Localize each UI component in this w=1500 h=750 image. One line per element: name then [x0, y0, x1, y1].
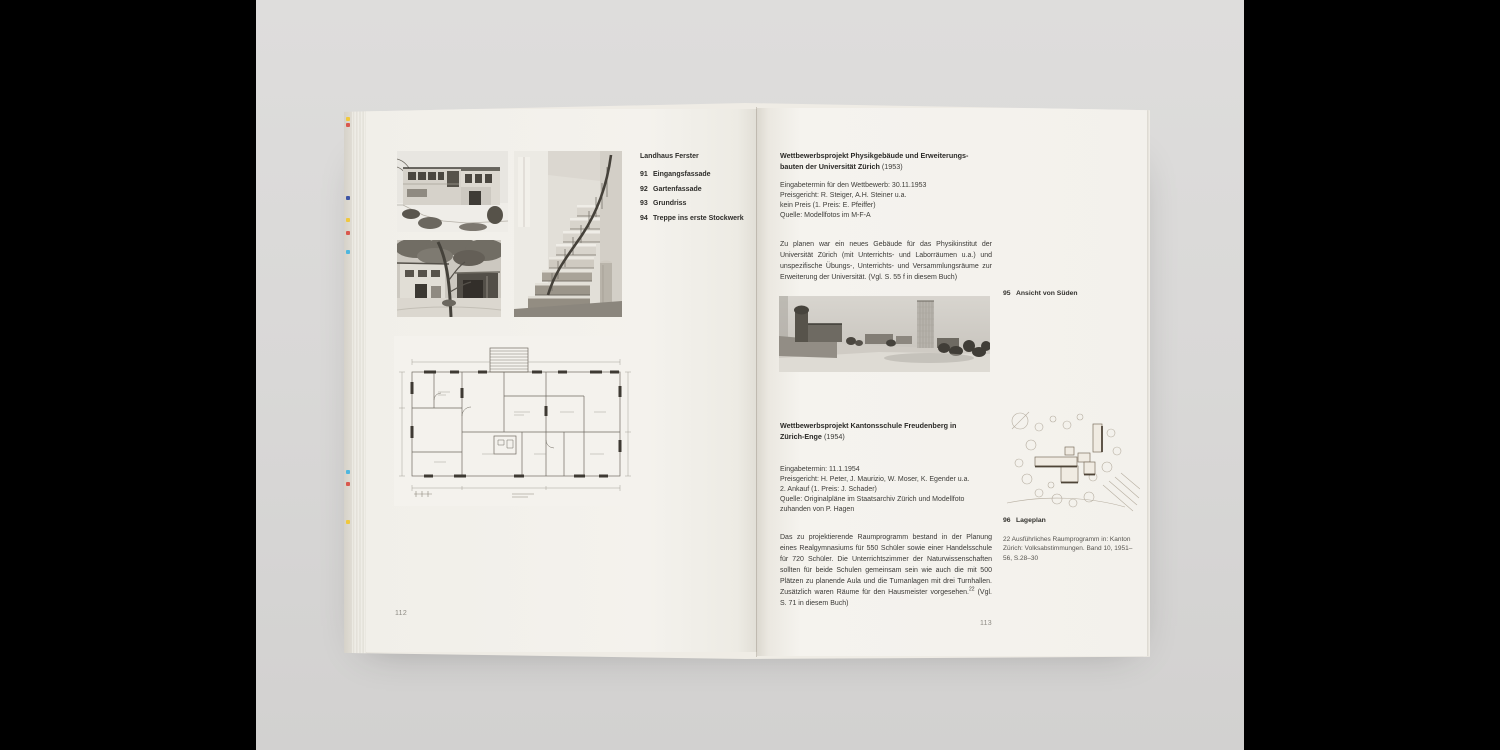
- registration-dot-icon: [346, 231, 350, 235]
- page-stack-fore-edge: [352, 106, 367, 656]
- section2-meta: Eingabetermin: 11.1.1954 Preisgericht: H…: [780, 465, 992, 515]
- caption-number: 96: [1003, 517, 1016, 525]
- caption-item: 92 Gartenfassade: [640, 186, 754, 194]
- caption-number: 95: [1003, 290, 1016, 298]
- registration-dot-icon: [346, 196, 350, 200]
- caption-item: 94 Treppe ins erste Stockwerk: [640, 215, 754, 223]
- section1-title: Wettbewerbsprojekt Physikgebäude und Erw…: [780, 150, 992, 172]
- registration-dot-icon: [346, 123, 350, 127]
- registration-dot-icon: [346, 250, 350, 254]
- section1-body: Zu planen war ein neues Gebäude für das …: [780, 239, 992, 283]
- caption-item: 93 Grundriss: [640, 200, 754, 208]
- caption-label: Lageplan: [1016, 517, 1046, 525]
- open-book-spread: Landhaus Ferster 91 Eingangsfassade 92 G…: [344, 103, 1150, 659]
- page-number: 113: [780, 620, 992, 627]
- meta-line: Eingabetermin: 11.1.1954: [780, 465, 992, 475]
- caption-label: Gartenfassade: [653, 186, 702, 194]
- caption-number: 94: [640, 215, 653, 223]
- caption-label: Treppe ins erste Stockwerk: [653, 215, 744, 223]
- caption-number: 93: [640, 200, 653, 208]
- meta-line: Preisgericht: R. Steiger, A.H. Steiner u…: [780, 191, 992, 201]
- registration-dot-icon: [346, 470, 350, 474]
- meta-line: Quelle: Modellfotos im M-F-A: [780, 211, 992, 221]
- title-text: Zürich-Enge: [780, 432, 822, 441]
- meta-line: Preisgericht: H. Peter, J. Maurizio, W. …: [780, 475, 992, 485]
- caption-number: 91: [640, 171, 653, 179]
- section1-title-line1: Wettbewerbsprojekt Physikgebäude und Erw…: [780, 150, 992, 161]
- right-page: Wettbewerbsprojekt Physikgebäude und Erw…: [757, 108, 1147, 656]
- figure96-caption: 96 Lageplan: [1003, 517, 1123, 525]
- footnote: 22 Ausführliches Raumprogramm in: Kanton…: [1003, 535, 1135, 563]
- book-gutter: [756, 107, 757, 657]
- meta-line: Eingabetermin für den Wettbewerb: 30.11.…: [780, 181, 992, 191]
- title-year: (1954): [824, 432, 845, 441]
- caption-item: 91 Eingangsfassade: [640, 171, 754, 179]
- staircase-photo: [514, 151, 622, 317]
- caption-label: Ansicht von Süden: [1016, 290, 1078, 298]
- section1-meta: Eingabetermin für den Wettbewerb: 30.11.…: [780, 181, 992, 221]
- entrance-facade-photo: [397, 151, 508, 232]
- section1-title-line2: bauten der Universität Zürich (1953): [780, 161, 992, 172]
- caption-number: 92: [640, 186, 653, 194]
- section2-title-line1: Wettbewerbsprojekt Kantonsschule Freuden…: [780, 420, 992, 431]
- meta-line: Quelle: Originalpläne im Staatsarchiv Zü…: [780, 495, 992, 515]
- section2-body: Das zu projektierende Raumprogramm besta…: [780, 532, 992, 609]
- title-year: (1953): [882, 162, 903, 171]
- figure-caption-block: Landhaus Ferster 91 Eingangsfassade 92 G…: [640, 153, 754, 229]
- registration-dot-icon: [346, 520, 350, 524]
- registration-dot-icon: [346, 218, 350, 222]
- registration-dot-icon: [346, 117, 350, 121]
- section2-title-line2: Zürich-Enge (1954): [780, 431, 992, 442]
- figure95-caption: 95 Ansicht von Süden: [1003, 290, 1123, 298]
- site-plan-sketch: [1005, 407, 1140, 514]
- registration-dot-icon: [346, 482, 350, 486]
- caption-title: Landhaus Ferster: [640, 153, 754, 161]
- left-page: Landhaus Ferster 91 Eingangsfassade 92 G…: [366, 109, 757, 652]
- meta-line: 2. Ankauf (1. Preis: J. Schader): [780, 485, 992, 495]
- title-text: bauten der Universität Zürich: [780, 162, 880, 171]
- section2-title: Wettbewerbsprojekt Kantonsschule Freuden…: [780, 420, 992, 442]
- floor-plan-drawing: [394, 336, 637, 506]
- model-photo-view-from-south: [779, 296, 990, 372]
- caption-label: Grundriss: [653, 200, 686, 208]
- meta-line: kein Preis (1. Preis: E. Pfeiffer): [780, 201, 992, 211]
- garden-facade-photo: [397, 240, 501, 317]
- caption-label: Eingangsfassade: [653, 171, 711, 179]
- page-number: 112: [395, 610, 407, 617]
- body-text: Das zu projektierende Raumprogramm besta…: [780, 534, 992, 596]
